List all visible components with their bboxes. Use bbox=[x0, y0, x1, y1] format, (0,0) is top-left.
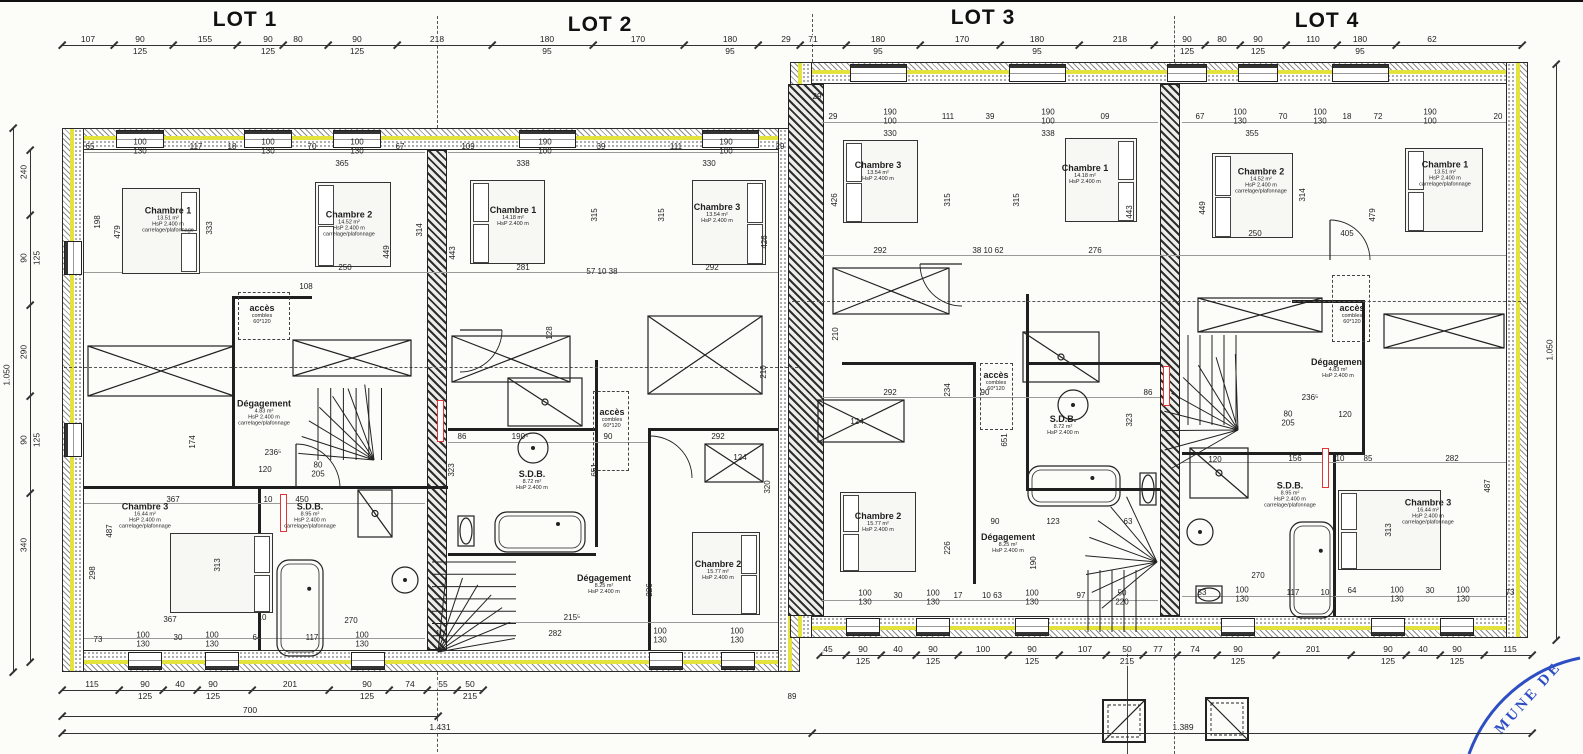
dim-value: 1.431 bbox=[428, 723, 451, 732]
dim-annotation: 276 bbox=[1088, 247, 1101, 256]
room-name: accès bbox=[599, 407, 624, 417]
dim-value-sub: 215 bbox=[1119, 657, 1135, 666]
dim-value: 74 bbox=[404, 680, 415, 689]
wall-texture bbox=[63, 140, 799, 149]
dim-annotation: 86 bbox=[1144, 389, 1153, 398]
wall-texture bbox=[791, 630, 1527, 637]
dim-annotation: 314 bbox=[416, 223, 425, 236]
stair-winder bbox=[348, 389, 374, 460]
room-label: Chambre 113.51 m²HsP 2.400 mcarrelage/pl… bbox=[1419, 160, 1471, 189]
dim-annotation: 90 bbox=[604, 433, 613, 442]
dim-value: 1.389 bbox=[1171, 723, 1194, 732]
dim-value-sub: 95 bbox=[1031, 47, 1042, 56]
leader-line bbox=[448, 622, 778, 623]
dim-annotation: 117 bbox=[190, 143, 203, 152]
window bbox=[1167, 64, 1207, 82]
dim-annotation: 226 bbox=[944, 541, 953, 554]
dim-annotation: 405 bbox=[1340, 230, 1353, 239]
dim-annotation: 70 bbox=[308, 143, 317, 152]
roof-slope-box bbox=[833, 268, 949, 314]
dim-annotation: 100130 bbox=[133, 139, 146, 156]
roof-slope-box bbox=[1198, 298, 1322, 332]
roof-sl-diag bbox=[648, 316, 762, 394]
dim-annotation: 190100 bbox=[1423, 109, 1436, 126]
bed bbox=[170, 533, 273, 613]
stair-winder bbox=[319, 407, 374, 460]
dim-value-sub: 125 bbox=[132, 47, 148, 56]
dim-value: 218 bbox=[1112, 35, 1128, 44]
room-meta: HsP 2.400 m bbox=[855, 176, 902, 182]
roof-sl-diag bbox=[1198, 298, 1322, 332]
dim-annotation: 09 bbox=[1101, 113, 1110, 122]
dim-value: 115 bbox=[1502, 645, 1518, 654]
window bbox=[846, 618, 880, 636]
dim-value: 45 bbox=[822, 645, 833, 654]
shower-diag bbox=[508, 378, 582, 426]
dim-annotation: 333 bbox=[206, 221, 215, 234]
dim-annotation: 315 bbox=[1013, 193, 1022, 206]
partition-wall bbox=[448, 553, 596, 556]
dim-annotation: 651 bbox=[1001, 433, 1010, 446]
exterior-wall bbox=[1506, 62, 1528, 638]
dim-annotation: 100130 bbox=[1456, 587, 1469, 604]
washbasin bbox=[1187, 519, 1213, 545]
room-meta: 60*120 bbox=[1339, 319, 1364, 325]
dim-value: 1.050 bbox=[1546, 338, 1555, 361]
room-label: Dégagement4.83 m²HsP 2.400 m bbox=[1311, 357, 1365, 379]
room-name: accès bbox=[983, 370, 1008, 380]
dim-value: 90 bbox=[20, 252, 29, 263]
exterior-wall bbox=[62, 128, 84, 672]
room-label: Chambre 114.18 m²HsP 2.400 m bbox=[1062, 163, 1109, 185]
room-label: accèscombles60*120 bbox=[599, 407, 624, 429]
dim-annotation: 108 bbox=[299, 283, 312, 292]
dim-annotation: 64 bbox=[1348, 587, 1357, 596]
dim-annotation: 10 63 bbox=[982, 592, 1002, 601]
dim-annotation: 443 bbox=[449, 246, 458, 259]
room-meta: HsP 2.400 m bbox=[981, 548, 1035, 554]
stair-winder bbox=[309, 421, 374, 460]
roof-sl-diag bbox=[88, 346, 234, 396]
dim-value-sub: 95 bbox=[1354, 47, 1365, 56]
dim-annotation: 313 bbox=[1385, 523, 1394, 536]
exterior-wall bbox=[62, 650, 800, 672]
stair-winder bbox=[1198, 365, 1238, 430]
dim-value: 71 bbox=[807, 35, 818, 44]
wall-texture bbox=[63, 129, 70, 671]
dim-annotation: 198 bbox=[94, 215, 103, 228]
dim-annotation: 30 bbox=[894, 592, 903, 601]
dim-tick bbox=[1552, 636, 1560, 644]
wall-texture bbox=[1507, 63, 1516, 637]
room-label: S.D.B.8.72 m²HsP 2.400 m bbox=[1047, 414, 1079, 436]
dim-value: 180 bbox=[1352, 35, 1368, 44]
dim-annotation: 38 10 62 bbox=[972, 247, 1003, 256]
room-label: S.D.B.8.95 m²HsP 2.400 mcarrelage/plafon… bbox=[1264, 481, 1316, 510]
basin-drain bbox=[1071, 403, 1075, 407]
dim-annotation: 190100 bbox=[883, 109, 896, 126]
skylight-diag bbox=[1103, 700, 1145, 742]
dim-value-sub: 125 bbox=[33, 432, 42, 448]
wall-texture bbox=[63, 651, 799, 660]
dim-annotation: 17 bbox=[954, 592, 963, 601]
dim-annotation: 323 bbox=[448, 463, 457, 476]
room-meta: HsP 2.400 m bbox=[1062, 179, 1109, 185]
dim-annotation: 10 bbox=[1321, 589, 1330, 598]
dim-annotation: 100130 bbox=[261, 139, 274, 156]
top-border-line bbox=[0, 0, 1583, 2]
room-label: Chambre 215.77 m²HsP 2.400 m bbox=[855, 511, 902, 533]
dim-tick bbox=[1528, 729, 1536, 737]
wall-texture bbox=[791, 617, 1527, 626]
room-name: Dégagement bbox=[577, 573, 631, 583]
roof-sl-diag bbox=[293, 340, 411, 376]
dim-value: 90 bbox=[1451, 645, 1462, 654]
partition-wall bbox=[84, 486, 448, 489]
window bbox=[721, 652, 755, 670]
dim-annotation: 100130 bbox=[350, 139, 363, 156]
dim-annotation: 117 bbox=[1287, 589, 1300, 598]
pillow bbox=[1341, 532, 1357, 569]
window bbox=[64, 241, 82, 275]
dim-annotation: 100130 bbox=[1025, 590, 1038, 607]
dim-annotation: 10 bbox=[258, 614, 267, 623]
left-overall-chain bbox=[13, 128, 14, 672]
dim-annotation: 292 bbox=[705, 264, 718, 273]
dim-annotation: 250 bbox=[338, 264, 351, 273]
dim-value: 90 bbox=[262, 35, 273, 44]
dim-value: 90 bbox=[139, 680, 150, 689]
dim-annotation: 29 bbox=[776, 143, 785, 152]
room-name: S.D.B. bbox=[1047, 414, 1079, 424]
partition-wall bbox=[448, 428, 598, 431]
room-label: Dégagement4.83 m²HsP 2.400 mcarrelage/pl… bbox=[237, 399, 291, 428]
dim-value: 77 bbox=[1152, 645, 1163, 654]
dim-annotation: 426 bbox=[761, 235, 770, 248]
dim-annotation: 479 bbox=[1369, 208, 1378, 221]
stair-winder bbox=[1086, 562, 1157, 575]
room-name: S.D.B. bbox=[284, 502, 336, 512]
room-name: accès bbox=[1339, 303, 1364, 313]
dim-annotation: 120 bbox=[1208, 456, 1221, 465]
dim-annotation: 100130 bbox=[1233, 109, 1246, 126]
dim-value: 110 bbox=[1305, 35, 1321, 44]
total-700-line bbox=[62, 716, 438, 717]
dim-annotation: 120 bbox=[258, 466, 271, 475]
window bbox=[1009, 64, 1066, 82]
dim-value-sub: 125 bbox=[260, 47, 276, 56]
dim-annotation: 100130 bbox=[355, 632, 368, 649]
dim-value: 90 bbox=[927, 645, 938, 654]
right-overall-chain bbox=[1556, 64, 1557, 640]
dim-annotation: 100130 bbox=[1390, 587, 1403, 604]
dim-value-sub: 125 bbox=[205, 692, 221, 701]
axis-line bbox=[1174, 16, 1175, 62]
leader-line bbox=[822, 122, 1158, 123]
room-name: Chambre 3 bbox=[1402, 498, 1454, 508]
dim-annotation: 320 bbox=[764, 480, 773, 493]
room-name: Chambre 3 bbox=[855, 160, 902, 170]
bathtub-drain bbox=[1319, 549, 1323, 553]
window bbox=[1238, 64, 1278, 82]
dim-value-sub: 95 bbox=[541, 47, 552, 56]
dim-annotation: 298 bbox=[89, 566, 98, 579]
bathtub-drain bbox=[556, 522, 560, 526]
room-name: Chambre 3 bbox=[119, 502, 171, 512]
dim-annotation: 487 bbox=[1484, 479, 1493, 492]
dim-annotation: 281 bbox=[516, 264, 529, 273]
wall-texture bbox=[779, 129, 788, 671]
roof-sl-diag bbox=[1198, 298, 1322, 332]
dim-annotation: 65 bbox=[86, 143, 95, 152]
window bbox=[1015, 618, 1049, 636]
partition-wall bbox=[232, 296, 235, 488]
dim-value-sub: 125 bbox=[1179, 47, 1195, 56]
wc-bowl bbox=[460, 518, 472, 544]
pillow bbox=[254, 536, 270, 573]
room-name: Chambre 2 bbox=[323, 210, 375, 220]
pillow bbox=[473, 224, 489, 263]
room-label: Chambre 313.54 m²HsP 2.400 m bbox=[694, 202, 741, 224]
dim-value-sub: 125 bbox=[349, 47, 365, 56]
roof-sl-diag bbox=[452, 336, 570, 382]
dim-annotation: 314 bbox=[1299, 188, 1308, 201]
room-meta: carrelage/plafonnage bbox=[1419, 182, 1471, 188]
ridge-axis-line bbox=[792, 301, 1526, 302]
room-name: Chambre 3 bbox=[694, 202, 741, 212]
wall-texture bbox=[63, 664, 799, 671]
dim-value: 90 bbox=[1026, 645, 1037, 654]
dim-annotation: 70 bbox=[1279, 113, 1288, 122]
dim-tick bbox=[1518, 41, 1526, 49]
bathtub-drain bbox=[1090, 476, 1094, 480]
dim-value: 170 bbox=[954, 35, 970, 44]
dim-annotation: 315 bbox=[591, 208, 600, 221]
pillow bbox=[1408, 192, 1424, 231]
shower-tray bbox=[358, 490, 392, 537]
stair-winder bbox=[1098, 521, 1157, 562]
dim-annotation: 100130 bbox=[1313, 109, 1326, 126]
dim-annotation: 330 bbox=[883, 130, 896, 139]
dim-annotation: 651 bbox=[591, 463, 600, 476]
total-line bbox=[62, 733, 1532, 734]
shower-diag bbox=[1023, 332, 1099, 382]
shower-diag bbox=[358, 490, 392, 537]
stair-winder bbox=[1183, 377, 1238, 430]
dim-annotation: 315 bbox=[658, 208, 667, 221]
bathtub bbox=[1290, 522, 1334, 618]
room-meta: carrelage/plafonnage bbox=[1264, 503, 1316, 509]
skylight-symbol bbox=[1103, 700, 1145, 742]
pillow bbox=[254, 575, 270, 612]
pillow bbox=[843, 534, 859, 571]
lot-title-1: LOT 1 bbox=[213, 8, 278, 32]
pillow bbox=[741, 575, 757, 613]
dim-value: 40 bbox=[892, 645, 903, 654]
dim-annotation: 39 bbox=[597, 143, 606, 152]
partition-wall bbox=[1026, 294, 1029, 491]
dim-tick bbox=[479, 686, 487, 694]
room-meta: HsP 2.400 m bbox=[490, 221, 537, 227]
partition-wall bbox=[1333, 455, 1336, 616]
radiator-mark bbox=[1163, 366, 1170, 406]
party-wall bbox=[1160, 84, 1180, 616]
dim-value: 80 bbox=[292, 35, 303, 44]
dim-annotation: 72 bbox=[1374, 113, 1383, 122]
dim-annotation: 190⁵ bbox=[512, 433, 529, 442]
lot-title-3: LOT 3 bbox=[951, 6, 1016, 30]
bottom-left-dim-chain bbox=[62, 690, 483, 691]
dim-annotation: 30 bbox=[1426, 587, 1435, 596]
dim-value: 100 bbox=[975, 645, 991, 654]
dim-annotation: 270 bbox=[344, 617, 357, 626]
skylight-inner bbox=[1211, 703, 1243, 735]
room-name: Chambre 1 bbox=[1062, 163, 1109, 173]
dim-annotation: 109 bbox=[461, 143, 474, 152]
dim-value-sub: 125 bbox=[1250, 47, 1266, 56]
stair-winder bbox=[302, 437, 374, 460]
dim-annotation: 174 bbox=[189, 435, 198, 448]
dim-annotation: 53 bbox=[1198, 589, 1207, 598]
dim-value: 180 bbox=[1029, 35, 1045, 44]
pillow bbox=[1215, 197, 1231, 236]
exterior-wall bbox=[62, 128, 800, 150]
dim-annotation: 18 bbox=[228, 143, 237, 152]
dim-annotation: 124 bbox=[850, 418, 863, 427]
roof-sl-diag bbox=[1384, 314, 1504, 348]
door-swing-arc bbox=[460, 330, 502, 372]
dim-value: 115 bbox=[84, 680, 100, 689]
stair-winder bbox=[1235, 354, 1238, 430]
dim-annotation: 20 bbox=[1494, 113, 1503, 122]
dim-value: 90 bbox=[1252, 35, 1263, 44]
party-wall bbox=[788, 84, 824, 616]
basin-drain bbox=[531, 446, 535, 450]
door-swing-arc bbox=[920, 264, 962, 306]
left-dim-chain bbox=[30, 150, 31, 662]
dim-annotation: 111 bbox=[942, 113, 954, 122]
dim-annotation: 10 bbox=[436, 630, 445, 639]
dim-value-sub: 125 bbox=[359, 692, 375, 701]
partition-wall bbox=[1026, 488, 1160, 491]
window bbox=[649, 652, 683, 670]
partition-wall bbox=[648, 428, 778, 431]
dim-annotation: 323 bbox=[1126, 413, 1135, 426]
dim-annotation: 236⁵ bbox=[265, 449, 282, 458]
dim-annotation: 282 bbox=[548, 630, 561, 639]
bathtub bbox=[1028, 466, 1120, 506]
dim-annotation: 10 bbox=[1336, 455, 1345, 464]
dim-value: 62 bbox=[1426, 35, 1437, 44]
dim-annotation: 29 bbox=[829, 113, 838, 122]
dim-annotation: 57 10 38 bbox=[586, 268, 617, 277]
dim-annotation: 39 bbox=[986, 113, 995, 122]
dim-annotation: 210 bbox=[832, 327, 841, 340]
dim-annotation: 63 bbox=[1124, 518, 1133, 527]
bathtub-inner bbox=[499, 516, 581, 548]
washbasin bbox=[392, 567, 418, 593]
dim-annotation: 190100 bbox=[1041, 109, 1054, 126]
pillow bbox=[181, 233, 197, 273]
pillow bbox=[741, 535, 757, 573]
shower-drain bbox=[1058, 354, 1064, 360]
dim-annotation: 111 bbox=[670, 143, 682, 152]
room-name: Chambre 2 bbox=[855, 511, 902, 521]
dim-value: 201 bbox=[1305, 645, 1321, 654]
room-meta: carrelage/plafonnage bbox=[1235, 189, 1287, 195]
dim-annotation: 100130 bbox=[205, 632, 218, 649]
room-name: Dégagement bbox=[981, 532, 1035, 542]
shower-tray bbox=[508, 378, 582, 426]
room-label: Chambre 316.44 m²HsP 2.400 mcarrelage/pl… bbox=[1402, 498, 1454, 527]
dim-annotation: 292 bbox=[883, 389, 896, 398]
basin-drain bbox=[403, 578, 407, 582]
door-swing-arc bbox=[1330, 220, 1370, 260]
stair-winder bbox=[1085, 556, 1157, 562]
bathtub-inner bbox=[1032, 470, 1116, 502]
room-label: Chambre 214.52 m²HsP 2.400 mcarrelage/pl… bbox=[323, 210, 375, 239]
dim-value: 170 bbox=[630, 35, 646, 44]
dim-annotation: 479 bbox=[114, 225, 123, 238]
roof-sl-diag bbox=[648, 316, 762, 394]
dim-value-sub: 125 bbox=[855, 657, 871, 666]
pillow bbox=[1215, 156, 1231, 195]
stair-winder bbox=[333, 396, 374, 460]
dim-annotation: 449 bbox=[1199, 201, 1208, 214]
room-meta: HsP 2.400 m bbox=[855, 527, 902, 533]
room-meta: HsP 2.400 m bbox=[1047, 430, 1079, 436]
roof-slope-box bbox=[705, 444, 763, 482]
dim-annotation: 190 bbox=[1030, 556, 1039, 569]
room-label: Dégagement8.25 m²HsP 2.400 m bbox=[577, 573, 631, 595]
room-label: Chambre 113.51 m²HsP 2.400 mcarrelage/pl… bbox=[142, 206, 194, 235]
dim-value: 29 bbox=[780, 35, 791, 44]
dim-annotation: 250 bbox=[1248, 230, 1261, 239]
dim-annotation: 64 bbox=[253, 634, 262, 643]
dim-annotation: 226 bbox=[646, 583, 655, 596]
room-name: Chambre 2 bbox=[1235, 167, 1287, 177]
dim-annotation: 124 bbox=[733, 454, 746, 463]
room-meta: carrelage/plafonnage bbox=[142, 228, 194, 234]
room-meta: carrelage/plafonnage bbox=[119, 524, 171, 530]
dim-annotation: 128 bbox=[546, 326, 555, 339]
exterior-wall bbox=[790, 616, 1528, 638]
dim-annotation: 86 bbox=[458, 433, 467, 442]
dim-value: 180 bbox=[870, 35, 886, 44]
partition-wall bbox=[648, 428, 651, 650]
dim-annotation: 365 bbox=[335, 160, 348, 169]
room-name: accès bbox=[249, 303, 274, 313]
room-meta: carrelage/plafonnage bbox=[1402, 520, 1454, 526]
stair-winder bbox=[1102, 562, 1157, 608]
dim-annotation: 292 bbox=[873, 247, 886, 256]
room-label: S.D.B.8.72 m²HsP 2.400 m bbox=[516, 469, 548, 491]
basin-drain bbox=[1198, 530, 1202, 534]
room-meta: carrelage/plafonnage bbox=[323, 232, 375, 238]
dim-annotation: 100130 bbox=[858, 590, 871, 607]
dim-value-sub: 125 bbox=[1024, 657, 1040, 666]
bathtub bbox=[495, 512, 585, 552]
window bbox=[1371, 618, 1405, 636]
pillow bbox=[747, 183, 763, 222]
dim-value: 74 bbox=[1189, 645, 1200, 654]
dim-annotation: 29 bbox=[813, 93, 822, 102]
window bbox=[128, 652, 162, 670]
dim-annotation: 30 bbox=[174, 634, 183, 643]
roof-sl-diag bbox=[833, 268, 949, 314]
dim-value: 201 bbox=[282, 680, 298, 689]
dim-tick bbox=[434, 712, 442, 720]
